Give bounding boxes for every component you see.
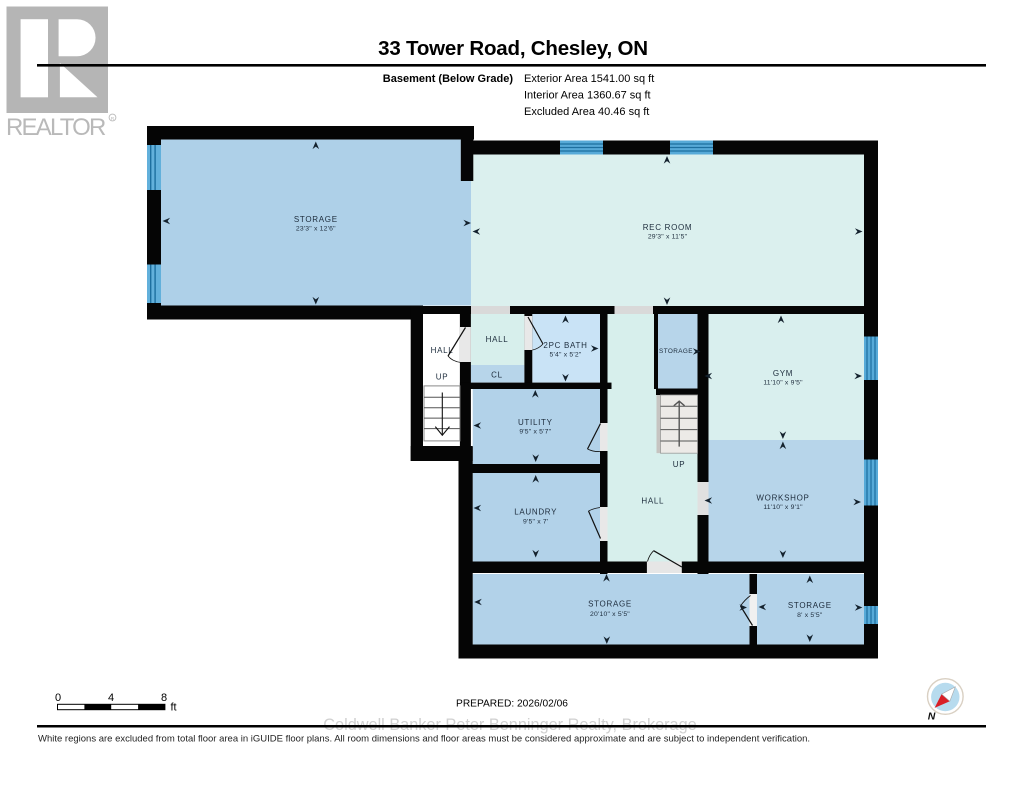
svg-text:STORAGE: STORAGE [588, 600, 632, 609]
svg-text:PREPARED: 2026/02/06: PREPARED: 2026/02/06 [456, 699, 568, 710]
svg-text:White regions are excluded fro: White regions are excluded from total fl… [38, 734, 810, 745]
svg-text:8: 8 [161, 692, 167, 704]
svg-text:33 Tower Road, Chesley, ON: 33 Tower Road, Chesley, ON [378, 37, 648, 60]
svg-text:STORAGE: STORAGE [294, 215, 338, 224]
svg-text:4: 4 [108, 692, 114, 704]
svg-text:GYM: GYM [773, 369, 793, 378]
svg-text:Interior Area 1360.67 sq ft: Interior Area 1360.67 sq ft [524, 90, 651, 102]
svg-text:ft: ft [171, 702, 177, 714]
svg-text:HALL: HALL [486, 335, 509, 344]
svg-text:20'10" x 5'5": 20'10" x 5'5" [590, 611, 630, 618]
svg-text:9'5" x 7': 9'5" x 7' [523, 518, 548, 525]
svg-text:UTILITY: UTILITY [518, 418, 553, 427]
svg-text:HALL: HALL [641, 497, 664, 506]
svg-text:0: 0 [55, 692, 61, 704]
svg-text:CL: CL [491, 371, 503, 380]
svg-text:Exterior Area 1541.00 sq ft: Exterior Area 1541.00 sq ft [524, 73, 654, 85]
svg-text:STORAGE: STORAGE [788, 601, 832, 610]
svg-text:2PC BATH: 2PC BATH [543, 341, 587, 350]
svg-text:STORAGE: STORAGE [659, 348, 693, 355]
svg-text:29'3" x 11'5": 29'3" x 11'5" [648, 234, 688, 241]
svg-text:WORKSHOP: WORKSHOP [756, 494, 809, 503]
svg-text:Excluded Area 40.46 sq ft: Excluded Area 40.46 sq ft [524, 106, 649, 118]
svg-text:UP: UP [673, 460, 686, 469]
svg-text:8' x 5'5": 8' x 5'5" [797, 612, 823, 619]
svg-text:23'3" x 12'6": 23'3" x 12'6" [296, 226, 336, 233]
svg-text:REALTOR: REALTOR [6, 114, 106, 141]
svg-text:Basement (Below Grade): Basement (Below Grade) [383, 73, 514, 85]
svg-text:LAUNDRY: LAUNDRY [514, 508, 557, 517]
svg-text:R: R [111, 116, 115, 122]
svg-text:UP: UP [436, 373, 449, 382]
svg-text:N: N [928, 711, 936, 723]
svg-text:11'10" x 9'1": 11'10" x 9'1" [763, 504, 803, 511]
svg-text:9'5" x 5'7": 9'5" x 5'7" [519, 429, 551, 436]
svg-text:11'10" x 9'5": 11'10" x 9'5" [763, 380, 803, 387]
svg-text:REC ROOM: REC ROOM [643, 223, 693, 232]
svg-text:5'4" x 5'2": 5'4" x 5'2" [550, 351, 582, 358]
